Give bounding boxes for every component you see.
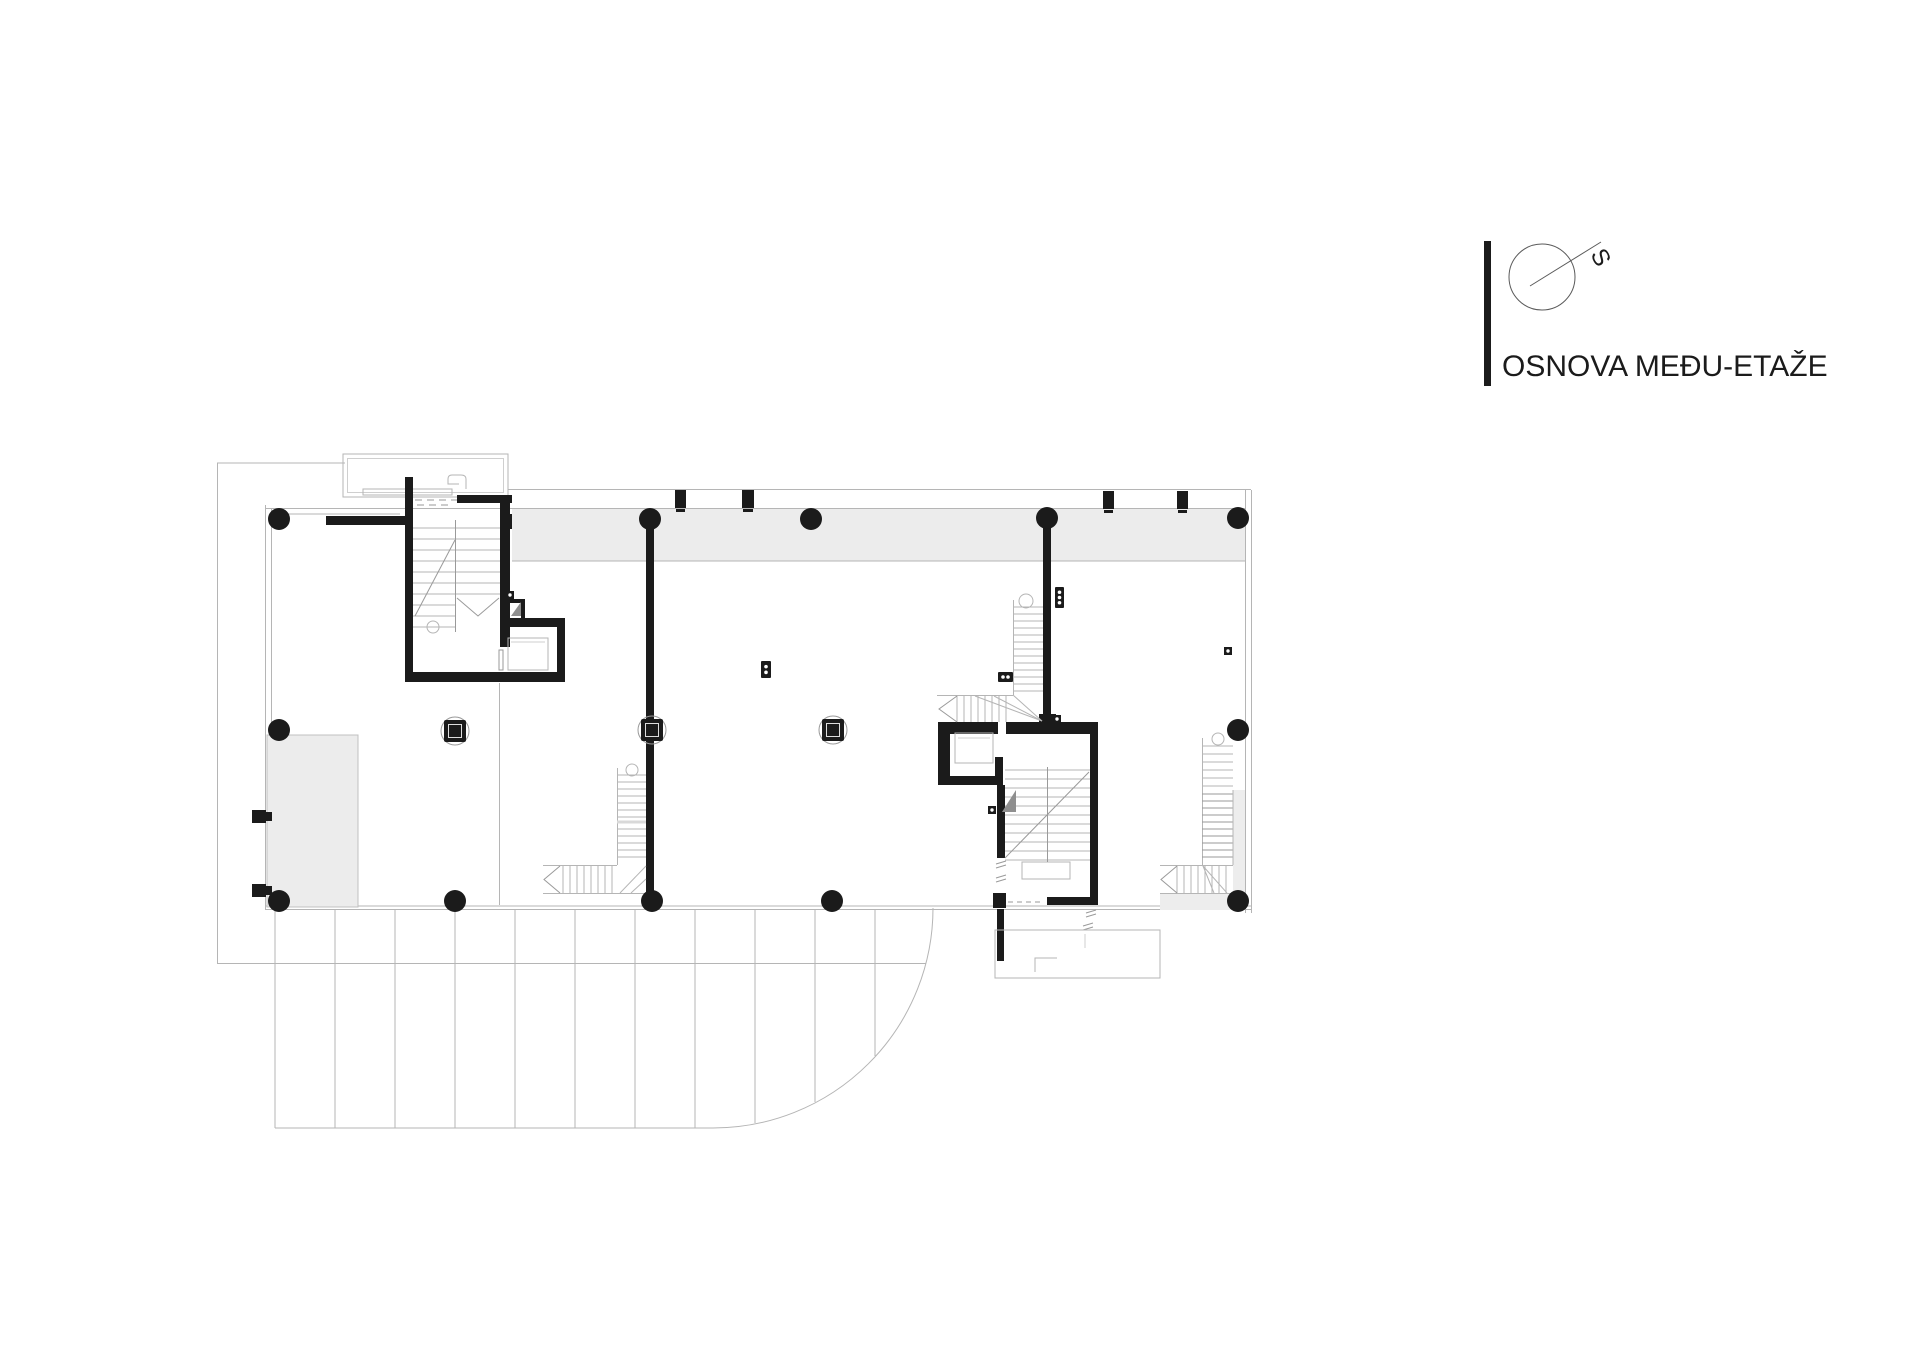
round-column [1227,507,1249,529]
round-column [641,890,663,912]
wall-stair-room-top [938,722,1097,734]
wall-elevator-room-top [502,618,565,627]
wall-top-left-horizontal [326,516,407,525]
stair-top-left [413,500,503,670]
north-circle [1509,244,1575,310]
stair-winder-mid-right [937,594,1043,722]
round-column [821,890,843,912]
round-column [1036,507,1058,529]
wall-stair-room-left [938,722,950,785]
door-leaf [499,650,503,670]
square-column [819,716,847,744]
dot-square-marker [988,806,996,814]
bottom-left-zone [267,735,358,907]
elevator-room-top-left [508,638,548,670]
stair-landing [1022,862,1070,879]
wall-middle-spine [646,519,654,893]
door-opening [998,722,1006,734]
square-column [441,717,469,745]
dot-square-marker [1053,715,1061,723]
round-column [800,508,822,530]
wall-stairwell-bottom [405,672,565,682]
round-column [268,890,290,912]
north-label: S [1585,244,1616,271]
columns [268,507,1249,912]
drawing-title: OSNOVA MEĐU-ETAŽE [1502,350,1828,383]
terrace-edge [275,908,933,1128]
title-bar [1484,241,1491,386]
wall-elevator-room-right [557,618,565,682]
dot-square-marker [506,591,514,599]
wall-stairwell-left [405,477,413,681]
markers [506,587,1232,814]
round-column [1227,890,1249,912]
round-column [1227,719,1249,741]
top-gallery-band [512,509,1245,561]
stair-middle-unit [543,764,646,894]
multi-dot-marker [998,672,1013,682]
terrace-joint-lines [275,909,875,1128]
wall-stair-room-right [1090,722,1098,905]
wall-right-spine [1043,519,1051,716]
gray-zones [267,735,1245,910]
multi-dot-marker [761,661,771,678]
dot-square-marker [1224,647,1232,655]
round-column [268,719,290,741]
multi-dot-marker [1055,587,1064,608]
roof-appendix [343,454,508,497]
round-column [268,508,290,530]
square-column [638,716,666,744]
round-column [639,508,661,530]
balcony-outline [995,930,1160,978]
wall-stair-room-bottom [1047,897,1098,905]
drawing-sheet: S OSNOVA MEĐU-ETAŽE [0,0,1920,1358]
round-column [444,890,466,912]
